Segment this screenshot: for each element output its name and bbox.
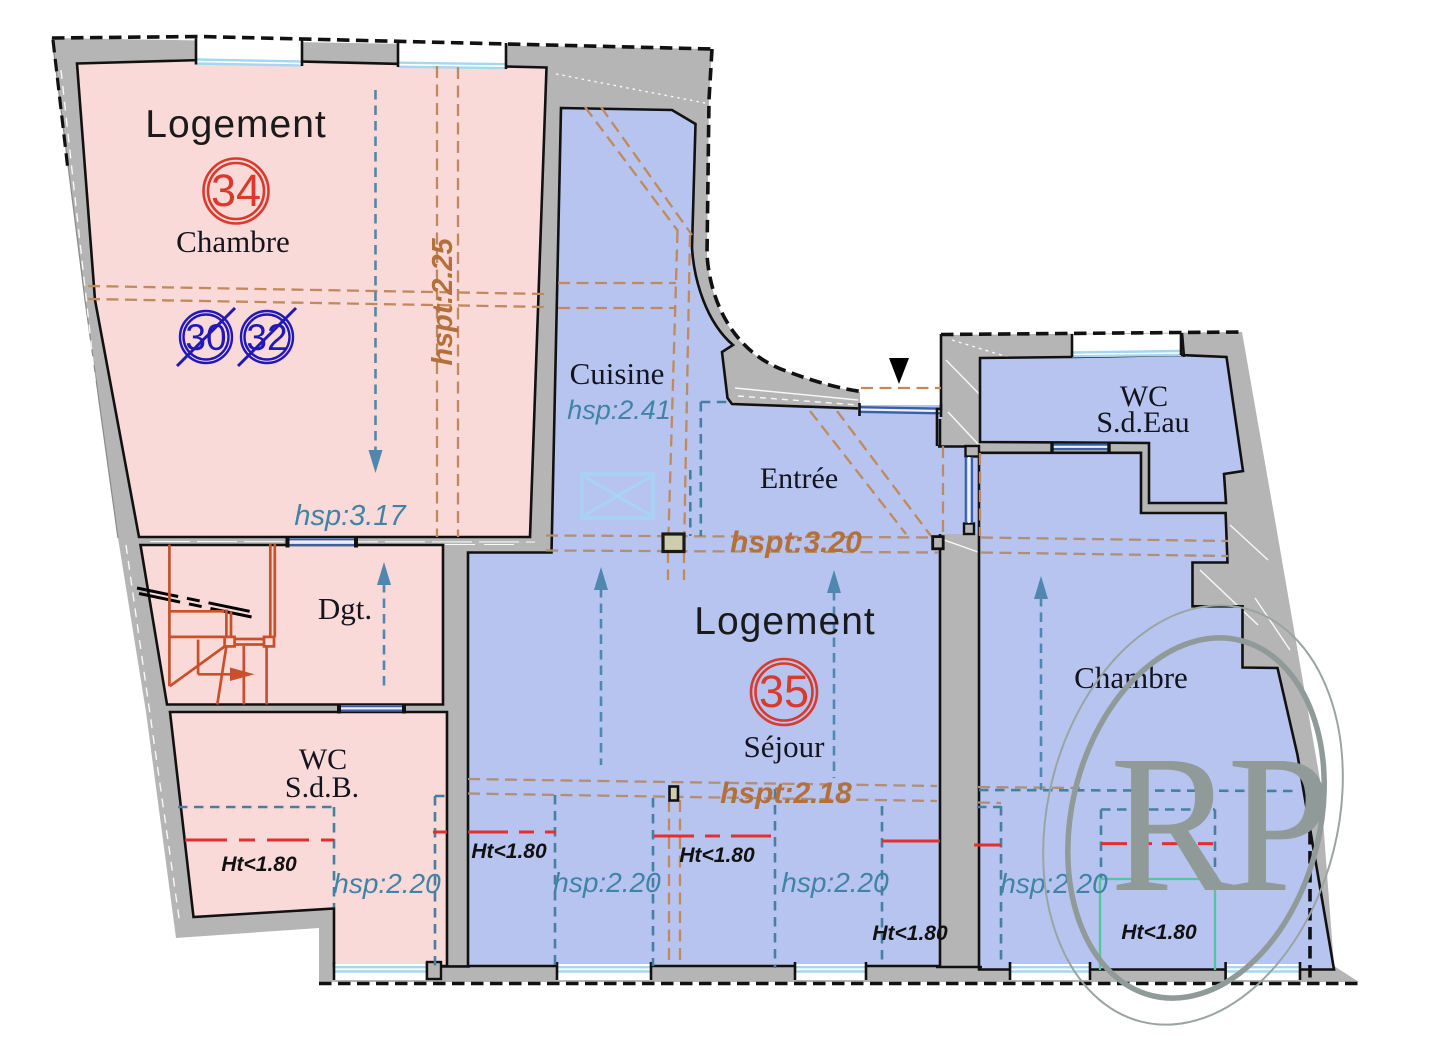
svg-text:RP: RP <box>1110 715 1325 933</box>
svg-text:S.d.B.: S.d.B. <box>285 771 359 804</box>
svg-text:Ht<1.80: Ht<1.80 <box>471 840 547 863</box>
svg-text:Entrée: Entrée <box>760 462 838 495</box>
svg-text:Ht<1.80: Ht<1.80 <box>679 844 755 867</box>
svg-text:Ht<1.80: Ht<1.80 <box>221 853 297 876</box>
svg-text:Chambre: Chambre <box>176 224 290 259</box>
svg-text:Dgt.: Dgt. <box>318 591 372 626</box>
svg-text:Logement: Logement <box>694 600 875 643</box>
svg-text:30: 30 <box>185 317 226 358</box>
svg-text:Cuisine: Cuisine <box>570 356 665 391</box>
svg-text:hspt:2.18: hspt:2.18 <box>720 777 852 810</box>
svg-text:hspt:3.20: hspt:3.20 <box>730 526 862 559</box>
svg-text:hsp:2.20: hsp:2.20 <box>781 867 889 898</box>
svg-text:34: 34 <box>211 165 261 216</box>
svg-text:hsp:2.41: hsp:2.41 <box>567 395 671 425</box>
svg-text:hsp:3.17: hsp:3.17 <box>294 500 407 532</box>
svg-text:32: 32 <box>246 317 287 358</box>
svg-text:hsp:2.20: hsp:2.20 <box>553 867 661 898</box>
svg-text:hsp:2.20: hsp:2.20 <box>1000 868 1108 899</box>
svg-text:Séjour: Séjour <box>744 729 826 764</box>
svg-text:35: 35 <box>759 666 809 717</box>
svg-text:S.d.Eau: S.d.Eau <box>1096 406 1189 439</box>
svg-text:hspt:2.25: hspt:2.25 <box>427 237 459 365</box>
svg-text:hsp:2.20: hsp:2.20 <box>333 868 441 899</box>
svg-text:Ht<1.80: Ht<1.80 <box>872 922 948 945</box>
svg-text:Logement: Logement <box>145 103 326 146</box>
